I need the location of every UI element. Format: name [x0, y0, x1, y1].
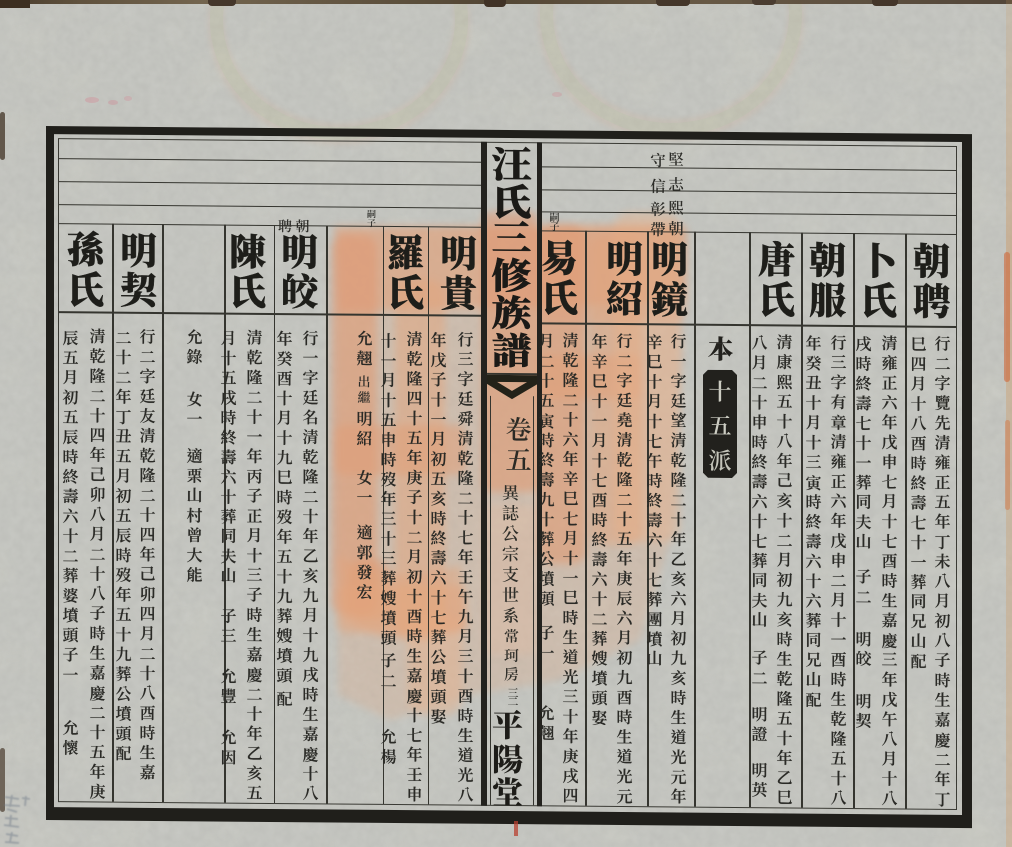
svg-text:十: 十 — [709, 374, 732, 407]
svg-text:五: 五 — [709, 408, 732, 441]
svg-text:派: 派 — [709, 443, 732, 476]
